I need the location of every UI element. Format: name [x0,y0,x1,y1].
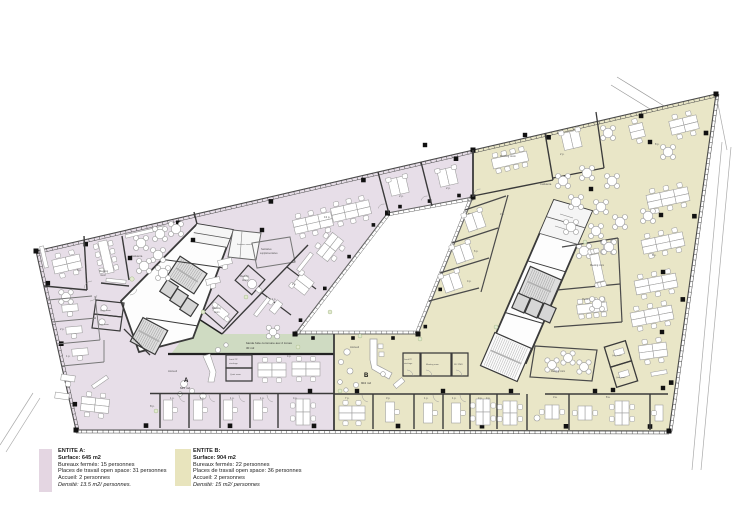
svg-text:room: room [100,273,106,277]
svg-text:Quiet room: Quiet room [616,376,626,379]
svg-text:1 p.: 1 p. [260,396,265,400]
svg-text:Accueil: Accueil [168,369,177,373]
svg-text:Sanitaires: Sanitaires [261,248,272,251]
svg-text:Reading: Reading [212,307,222,310]
svg-text:WC PMR: WC PMR [454,364,463,366]
svg-text:Meeting room: Meeting room [590,264,604,267]
svg-text:8 p.: 8 p. [150,404,155,408]
svg-text:645 m2: 645 m2 [180,386,190,390]
svg-text:3 a.: 3 a. [553,395,558,399]
svg-text:room: room [214,311,219,314]
svg-text:bande fuite commune aux 2 zone: bande fuite commune aux 2 zones [246,341,292,345]
svg-text:1 p.: 1 p. [272,298,276,301]
svg-text:3 p.: 3 p. [386,396,391,400]
svg-text:Meeting room: Meeting room [500,154,516,158]
svg-text:30 m2: 30 m2 [246,346,255,350]
svg-text:2 p.: 2 p. [292,283,296,286]
svg-text:Meeting: Meeting [240,275,249,278]
svg-text:3 p.: 3 p. [500,212,505,216]
svg-text:Local IT/: Local IT/ [404,359,412,361]
svg-text:4 p.: 4 p. [478,396,483,400]
svg-text:1 p.: 1 p. [200,396,205,400]
svg-text:A: A [184,378,189,384]
svg-text:Accueil: Accueil [350,345,359,349]
svg-text:Quiet room: Quiet room [230,373,241,376]
svg-text:room: room [242,279,247,282]
svg-text:2 p.: 2 p. [446,186,451,190]
svg-text:Meeting room: Meeting room [426,363,439,366]
svg-text:13 p.: 13 p. [324,215,330,219]
svg-text:Cafeteria: Cafeteria [131,254,143,258]
svg-text:8 p.: 8 p. [655,142,660,146]
svg-text:1 p.: 1 p. [424,396,429,400]
svg-text:stockage: stockage [229,362,239,365]
svg-text:2 p.: 2 p. [60,327,65,331]
svg-text:supplémentaires: supplémentaires [260,252,278,255]
svg-text:Quiet room: Quiet room [100,309,111,312]
svg-text:Sanitaires zone A: Sanitaires zone A [237,243,252,246]
svg-text:Local IT/: Local IT/ [229,359,238,361]
svg-text:4 p.: 4 p. [467,279,472,283]
svg-text:1 p.: 1 p. [170,396,175,400]
svg-text:8 a.: 8 a. [606,395,611,399]
svg-text:1 p.: 1 p. [452,396,457,400]
svg-text:Quiet room: Quiet room [98,323,109,326]
svg-text:4 p.: 4 p. [293,396,298,400]
svg-text:904 m2: 904 m2 [361,381,371,385]
svg-text:7 p.: 7 p. [345,396,350,400]
svg-text:6 p.: 6 p. [474,249,479,253]
svg-text:2 p.: 2 p. [560,152,565,156]
svg-text:Meeting room: Meeting room [551,370,565,373]
svg-text:Quiet room: Quiet room [612,354,622,357]
svg-text:8 p.: 8 p. [77,268,82,272]
svg-text:4 p.: 4 p. [486,396,491,400]
svg-text:Meeting: Meeting [99,269,109,273]
svg-text:Cafeteria: Cafeteria [540,182,552,186]
svg-text:4 p.: 4 p. [287,354,292,358]
svg-text:stockage: stockage [404,362,413,365]
svg-text:2 p.: 2 p. [399,194,404,198]
svg-text:B: B [364,373,369,379]
svg-text:1 p.: 1 p. [66,354,71,358]
svg-text:1 p.: 1 p. [230,396,235,400]
svg-text:8 p.: 8 p. [652,253,657,257]
